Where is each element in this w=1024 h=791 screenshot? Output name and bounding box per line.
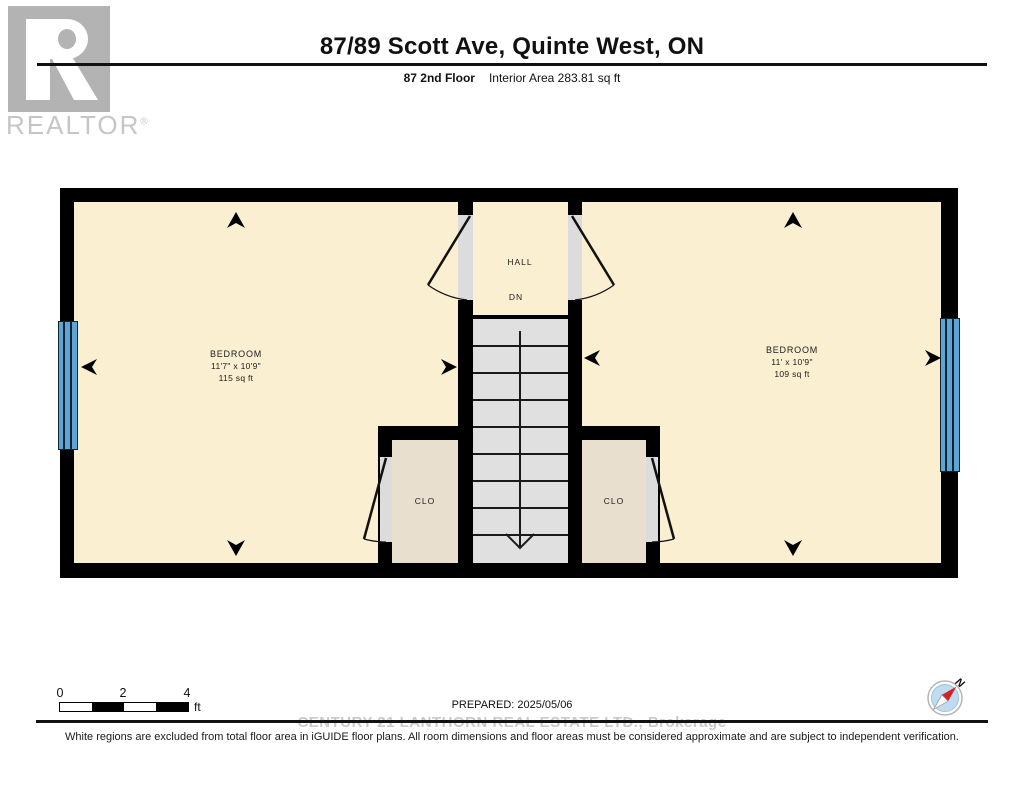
- floor-plan-page: REALTOR® 87/89 Scott Ave, Quinte West, O…: [0, 0, 1024, 791]
- scale-tick-4: 4: [179, 686, 195, 700]
- scale-tick-2: 2: [115, 686, 131, 700]
- scale-bar-segment: [156, 703, 188, 711]
- scale-bar-segment: [60, 703, 92, 711]
- scale-bar-segment: [92, 703, 124, 711]
- scale-bar-segment: [124, 703, 156, 711]
- disclaimer-text: White regions are excluded from total fl…: [0, 731, 1024, 743]
- room-name: BEDROOM: [136, 348, 336, 360]
- floor-subtitle: 87 2nd FloorInterior Area 283.81 sq ft: [0, 71, 1024, 85]
- bedroom-right-label: BEDROOM 11' x 10'9" 109 sq ft: [692, 344, 892, 380]
- staircase: [473, 319, 568, 563]
- closet-left-label: CLO: [375, 496, 475, 506]
- stairs-down-label: DN: [466, 292, 566, 302]
- title-divider: [37, 63, 987, 66]
- floor-label: 87 2nd Floor: [404, 71, 475, 85]
- scale-tick-0: 0: [52, 686, 68, 700]
- floor-plan: BEDROOM 11'7" x 10'9" 115 sq ft BEDROOM …: [60, 188, 958, 578]
- compass-icon: N: [919, 672, 973, 731]
- scale-unit-label: ft: [194, 700, 201, 714]
- room-area: 115 sq ft: [136, 372, 336, 384]
- window-right: [940, 318, 960, 472]
- room-dimensions: 11' x 10'9": [692, 356, 892, 368]
- room-name: BEDROOM: [692, 344, 892, 356]
- hall-right-door-opening: [568, 215, 582, 300]
- footer-divider: [36, 720, 988, 723]
- page-title: 87/89 Scott Ave, Quinte West, ON: [0, 33, 1024, 61]
- closet-right-label: CLO: [564, 496, 664, 506]
- realtor-logo-icon: [8, 6, 110, 112]
- bedroom-left-label: BEDROOM 11'7" x 10'9" 115 sq ft: [136, 348, 336, 384]
- prepared-date: PREPARED: 2025/05/06: [312, 699, 712, 711]
- window-left: [58, 321, 78, 450]
- interior-area-label: Interior Area 283.81 sq ft: [489, 71, 620, 85]
- realtor-logo: [8, 6, 110, 117]
- hall-label: HALL: [470, 257, 570, 267]
- room-dimensions: 11'7" x 10'9": [136, 360, 336, 372]
- room-area: 109 sq ft: [692, 368, 892, 380]
- registered-mark: ®: [140, 116, 149, 127]
- scale-bar: [59, 702, 189, 712]
